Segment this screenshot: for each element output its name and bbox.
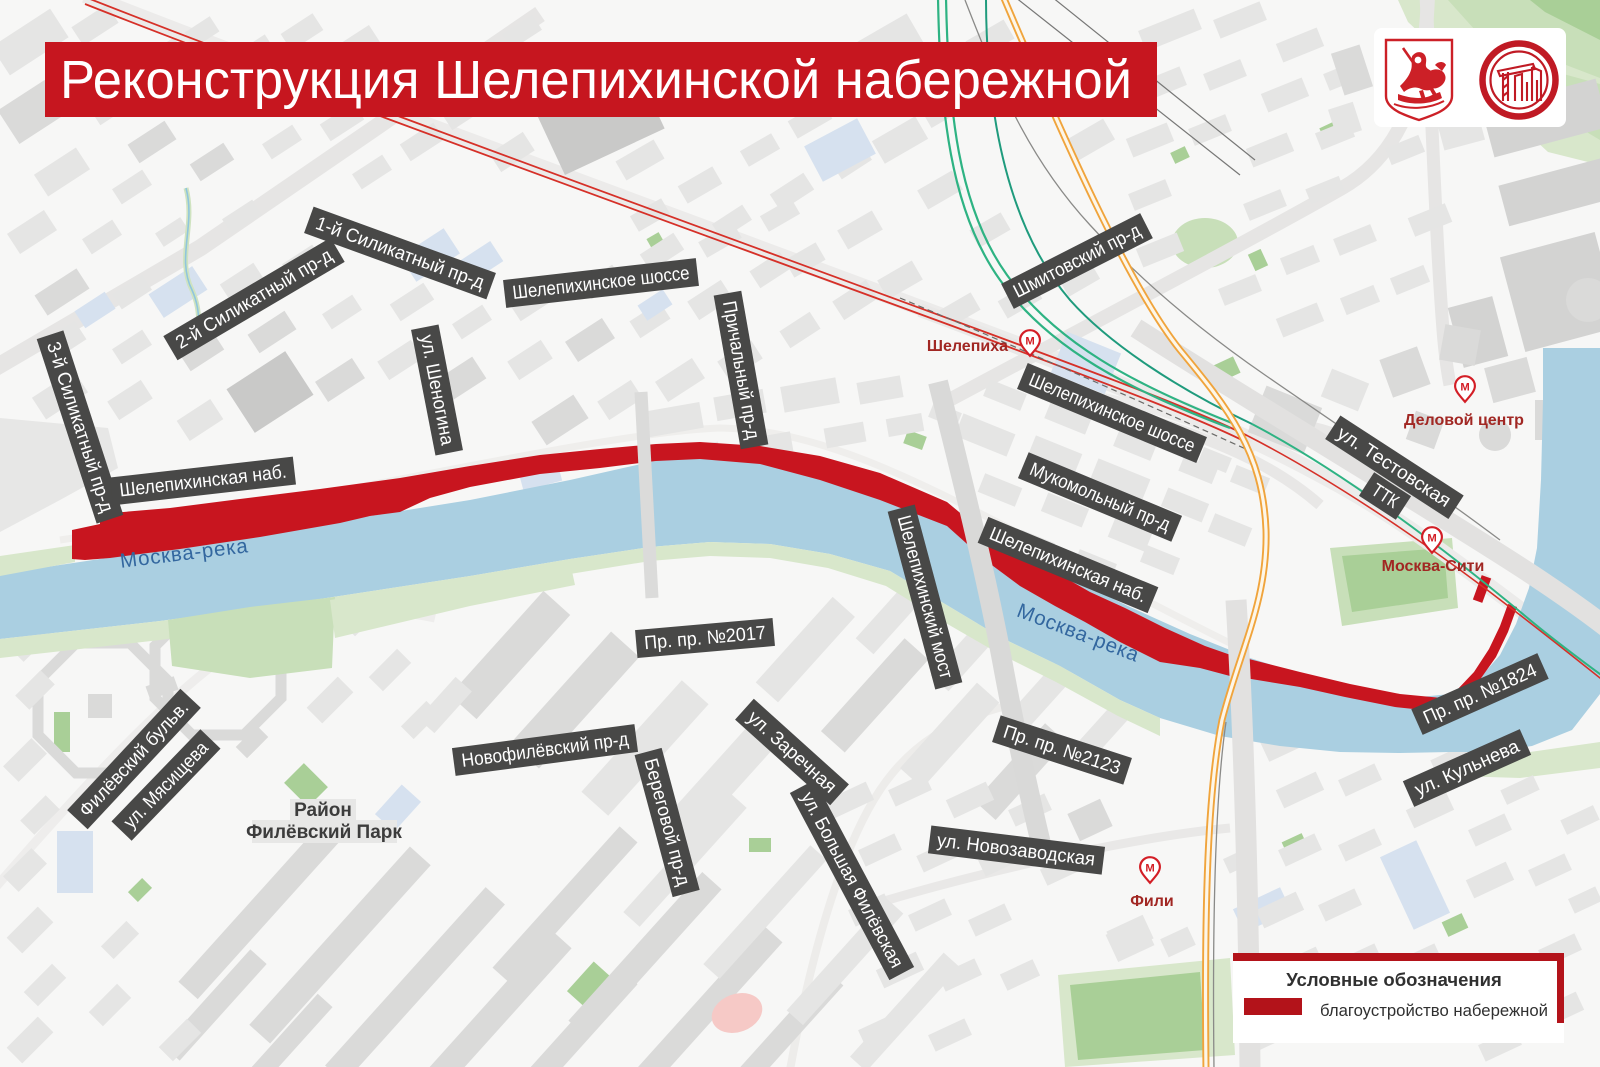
svg-text:Шелепиха: Шелепиха — [927, 338, 1008, 355]
svg-text:Район: Район — [294, 800, 352, 821]
svg-text:М: М — [1145, 862, 1154, 874]
svg-text:Реконструкция Шелепихинской на: Реконструкция Шелепихинской набережной — [60, 50, 1132, 110]
svg-text:М: М — [1427, 532, 1436, 544]
svg-text:благоустройство набережной: благоустройство набережной — [1320, 1001, 1548, 1020]
svg-text:Деловой центр: Деловой центр — [1404, 412, 1524, 429]
svg-text:М: М — [1460, 381, 1469, 393]
svg-text:Москва-Сити: Москва-Сити — [1382, 558, 1485, 575]
svg-text:М: М — [1025, 335, 1034, 347]
svg-text:Филёвский Парк: Филёвский Парк — [246, 822, 402, 843]
svg-text:Условные обозначения: Условные обозначения — [1286, 969, 1502, 990]
svg-text:Фили: Фили — [1130, 893, 1174, 910]
